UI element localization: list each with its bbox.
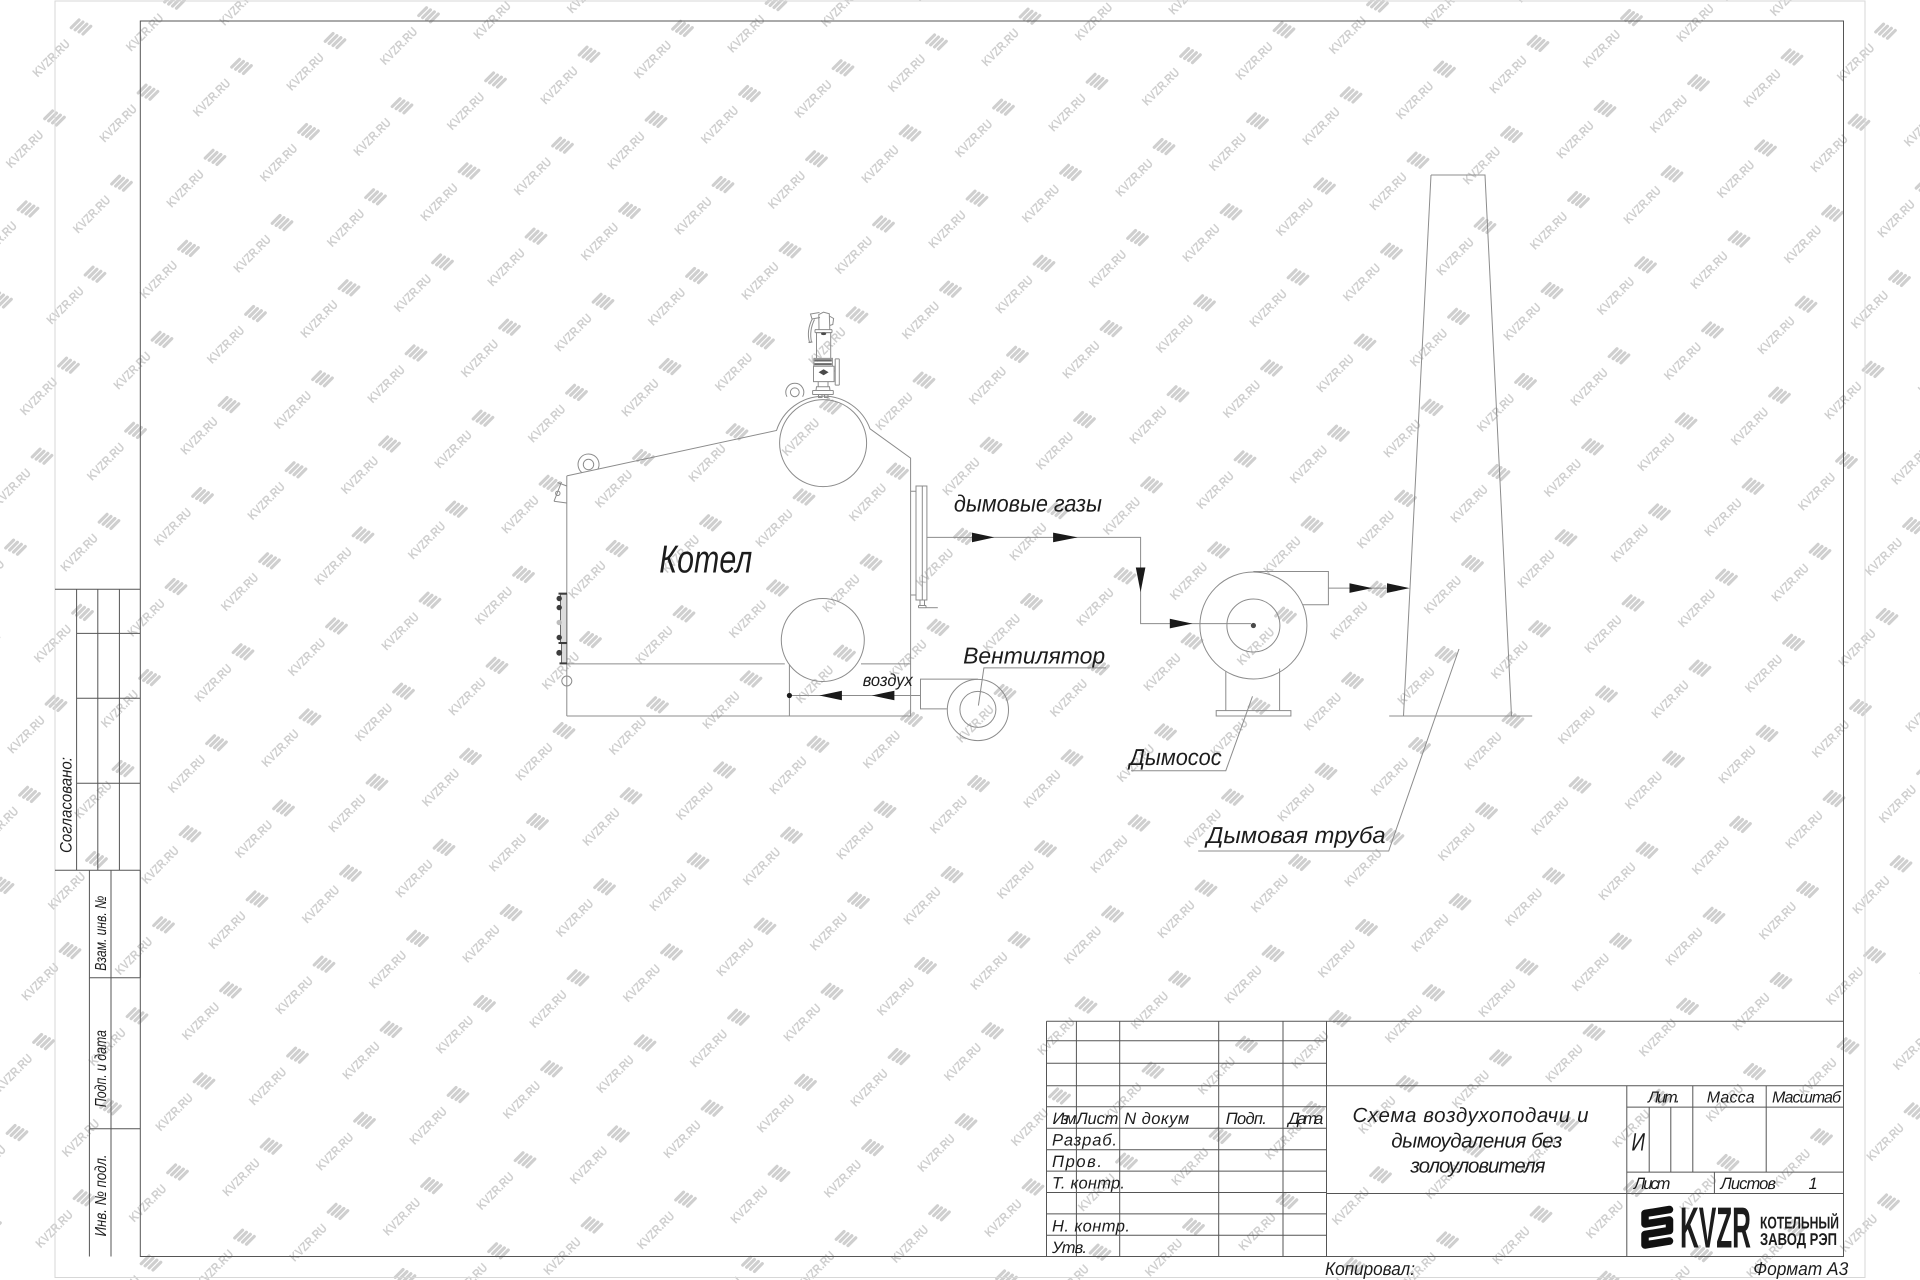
svg-text:KVZR.RU: KVZR.RU bbox=[874, 975, 917, 1018]
svg-text:KVZR.RU: KVZR.RU bbox=[792, 78, 835, 121]
svg-text:KVZR.RU: KVZR.RU bbox=[779, 416, 822, 459]
svg-text:KVZR.RU: KVZR.RU bbox=[1421, 573, 1464, 616]
svg-text:KVZR.RU: KVZR.RU bbox=[44, 284, 87, 327]
svg-text:KVZR.RU: KVZR.RU bbox=[606, 715, 649, 758]
svg-text:KVZR.RU: KVZR.RU bbox=[1836, 626, 1879, 669]
svg-text:KVZR.RU: KVZR.RU bbox=[728, 1183, 771, 1226]
svg-text:золоуловителя: золоуловителя bbox=[1409, 1155, 1545, 1178]
svg-text:KVZR.RU: KVZR.RU bbox=[1139, 65, 1182, 108]
svg-text:KVZR.RU: KVZR.RU bbox=[1582, 613, 1625, 656]
svg-text:KVZR.RU: KVZR.RU bbox=[1622, 769, 1665, 812]
svg-text:KVZR.RU: KVZR.RU bbox=[1273, 196, 1316, 239]
svg-text:KVZR.RU: KVZR.RU bbox=[1301, 690, 1344, 733]
svg-text:KVZR.RU: KVZR.RU bbox=[232, 818, 275, 861]
svg-text:KVZR.RU: KVZR.RU bbox=[405, 519, 448, 562]
svg-text:KVZR.RU: KVZR.RU bbox=[0, 557, 7, 600]
svg-text:KVZR.RU: KVZR.RU bbox=[1834, 41, 1877, 84]
svg-text:KVZR.RU: KVZR.RU bbox=[698, 103, 741, 146]
svg-text:Масштаб: Масштаб bbox=[1772, 1090, 1842, 1107]
svg-text:KVZR.RU: KVZR.RU bbox=[1716, 743, 1759, 786]
svg-text:KVZR.RU: KVZR.RU bbox=[1702, 496, 1745, 539]
svg-text:KVZR.RU: KVZR.RU bbox=[472, 584, 515, 627]
svg-text:KVZR.RU: KVZR.RU bbox=[1328, 599, 1371, 642]
svg-text:KVZR.RU: KVZR.RU bbox=[1222, 963, 1265, 1006]
svg-text:KVZR.RU: KVZR.RU bbox=[513, 740, 556, 783]
svg-text:KVZR.RU: KVZR.RU bbox=[1688, 249, 1731, 292]
svg-text:KVZR.RU: KVZR.RU bbox=[633, 624, 676, 667]
svg-text:KVZR.RU: KVZR.RU bbox=[1395, 664, 1438, 707]
svg-text:KVZR.RU: KVZR.RU bbox=[765, 169, 808, 212]
svg-text:Утв.: Утв. bbox=[1051, 1239, 1087, 1257]
svg-text:KVZR.RU: KVZR.RU bbox=[1074, 586, 1117, 629]
svg-text:KVZR.RU: KVZR.RU bbox=[793, 663, 836, 706]
svg-text:KVZR.RU: KVZR.RU bbox=[818, 0, 861, 30]
svg-text:KVZR.RU: KVZR.RU bbox=[1155, 898, 1198, 941]
svg-text:KVZR.RU: KVZR.RU bbox=[634, 1209, 677, 1252]
svg-text:KVZR.RU: KVZR.RU bbox=[192, 662, 235, 705]
svg-text:KVZR.RU: KVZR.RU bbox=[1502, 886, 1545, 929]
svg-text:Подп. и дата: Подп. и дата bbox=[93, 1030, 110, 1107]
svg-text:KVZR.RU: KVZR.RU bbox=[486, 831, 529, 874]
svg-text:KVZR.RU: KVZR.RU bbox=[915, 1132, 958, 1175]
svg-text:И: И bbox=[1632, 1128, 1646, 1156]
svg-text:KVZR.RU: KVZR.RU bbox=[100, 1273, 143, 1280]
svg-text:KVZR.RU: KVZR.RU bbox=[821, 1157, 864, 1200]
svg-text:KVZR.RU: KVZR.RU bbox=[137, 258, 180, 301]
svg-text:KVZR.RU: KVZR.RU bbox=[326, 792, 369, 835]
svg-text:KVZR.RU: KVZR.RU bbox=[231, 232, 274, 275]
svg-text:Изм: Изм bbox=[1053, 1110, 1077, 1128]
svg-text:KVZR.RU: KVZR.RU bbox=[0, 1142, 9, 1185]
svg-text:KVZR.RU: KVZR.RU bbox=[888, 1223, 931, 1266]
svg-text:KVZR.RU: KVZR.RU bbox=[58, 531, 101, 574]
svg-text:KVZR.RU: KVZR.RU bbox=[1206, 131, 1249, 174]
svg-text:KVZR.RU: KVZR.RU bbox=[795, 1248, 838, 1280]
svg-text:KVZR.RU: KVZR.RU bbox=[0, 466, 34, 509]
svg-text:KVZR.RU: KVZR.RU bbox=[1287, 443, 1330, 486]
svg-text:KVZR.RU: KVZR.RU bbox=[139, 844, 182, 887]
svg-text:KVZR.RU: KVZR.RU bbox=[807, 910, 850, 953]
svg-text:KVZR.RU: KVZR.RU bbox=[324, 207, 367, 250]
svg-text:KVZR.RU: KVZR.RU bbox=[859, 143, 902, 186]
svg-text:KVZR.RU: KVZR.RU bbox=[298, 298, 341, 341]
svg-text:Вентилятор: Вентилятор bbox=[963, 643, 1105, 669]
svg-text:KVZR.RU: KVZR.RU bbox=[714, 936, 757, 979]
svg-text:KVZR.RU: KVZR.RU bbox=[1490, 1224, 1533, 1267]
svg-text:KVZR.RU: KVZR.RU bbox=[151, 505, 194, 548]
svg-text:KVZR.RU: KVZR.RU bbox=[1127, 404, 1170, 447]
svg-text:Дата: Дата bbox=[1286, 1110, 1323, 1128]
svg-text:KVZR.RU: KVZR.RU bbox=[1756, 899, 1799, 942]
svg-text:KVZR.RU: KVZR.RU bbox=[564, 0, 607, 16]
svg-text:KVZR.RU: KVZR.RU bbox=[1420, 0, 1463, 31]
svg-text:KVZR.RU: KVZR.RU bbox=[1636, 1016, 1679, 1059]
svg-text:KVZR.RU: KVZR.RU bbox=[284, 50, 327, 93]
svg-text:KVZR.RU: KVZR.RU bbox=[700, 689, 743, 732]
svg-text:KVZR.RU: KVZR.RU bbox=[271, 389, 314, 432]
svg-text:KVZR.RU: KVZR.RU bbox=[1850, 874, 1893, 917]
svg-text:KVZR.RU: KVZR.RU bbox=[1261, 534, 1304, 577]
svg-text:KVZR.RU: KVZR.RU bbox=[259, 727, 302, 770]
svg-text:KVZR.RU: KVZR.RU bbox=[458, 337, 501, 380]
svg-text:KVZR.RU: KVZR.RU bbox=[1435, 821, 1478, 864]
svg-text:KVZR.RU: KVZR.RU bbox=[1781, 223, 1824, 266]
svg-text:KVZR.RU: KVZR.RU bbox=[527, 988, 570, 1031]
svg-text:KVZR.RU: KVZR.RU bbox=[1021, 768, 1064, 811]
svg-text:KVZR.RU: KVZR.RU bbox=[1730, 990, 1773, 1033]
svg-text:KVZR.RU: KVZR.RU bbox=[1300, 105, 1343, 148]
svg-text:KVZR.RU: KVZR.RU bbox=[1008, 1106, 1051, 1149]
svg-text:KVZR.RU: KVZR.RU bbox=[1060, 338, 1103, 381]
svg-text:KVZR.RU: KVZR.RU bbox=[218, 571, 261, 614]
svg-text:KVZR.RU: KVZR.RU bbox=[952, 117, 995, 160]
svg-text:KVZR.RU: KVZR.RU bbox=[901, 884, 944, 927]
svg-text:KVZR.RU: KVZR.RU bbox=[1368, 755, 1411, 798]
svg-text:KVZR.RU: KVZR.RU bbox=[1007, 520, 1050, 563]
svg-text:KVZR.RU: KVZR.RU bbox=[1340, 261, 1383, 304]
svg-text:Подп.: Подп. bbox=[1226, 1110, 1267, 1128]
svg-text:KVZR.RU: KVZR.RU bbox=[968, 950, 1011, 993]
svg-text:KVZR.RU: KVZR.RU bbox=[725, 12, 768, 55]
svg-text:KVZR.RU: KVZR.RU bbox=[164, 167, 207, 210]
svg-text:KVZR.RU: KVZR.RU bbox=[433, 1013, 476, 1056]
svg-text:KVZR.RU: KVZR.RU bbox=[511, 155, 554, 198]
svg-text:KVZR.RU: KVZR.RU bbox=[1862, 535, 1905, 578]
svg-text:KVZR.RU: KVZR.RU bbox=[1527, 209, 1570, 252]
svg-text:KVZR.RU: KVZR.RU bbox=[913, 546, 956, 589]
svg-text:KVZR.RU: KVZR.RU bbox=[580, 806, 623, 849]
svg-text:Т. контр.: Т. контр. bbox=[1052, 1175, 1125, 1193]
svg-text:KVZR: KVZR bbox=[1680, 1196, 1751, 1261]
svg-text:KVZR.RU: KVZR.RU bbox=[70, 193, 113, 236]
svg-text:KVZR.RU: KVZR.RU bbox=[0, 0, 6, 15]
svg-text:KVZR.RU: KVZR.RU bbox=[1233, 40, 1276, 83]
svg-text:KVZR.RU: KVZR.RU bbox=[179, 1000, 222, 1043]
svg-text:KVZR.RU: KVZR.RU bbox=[567, 1144, 610, 1187]
svg-text:KVZR.RU: KVZR.RU bbox=[97, 102, 140, 145]
svg-text:KVZR.RU: KVZR.RU bbox=[592, 467, 635, 510]
svg-text:KVZR.RU: KVZR.RU bbox=[566, 558, 609, 601]
svg-text:KVZR.RU: KVZR.RU bbox=[1153, 313, 1196, 356]
svg-text:KVZR.RU: KVZR.RU bbox=[1141, 651, 1184, 694]
svg-text:KVZR.RU: KVZR.RU bbox=[846, 481, 889, 524]
svg-text:KVZR.RU: KVZR.RU bbox=[1809, 717, 1852, 760]
svg-text:KVZR.RU: KVZR.RU bbox=[739, 260, 782, 303]
svg-text:KVZR.RU: KVZR.RU bbox=[365, 363, 408, 406]
svg-text:KVZR.RU: KVZR.RU bbox=[3, 128, 46, 171]
svg-text:KVZR.RU: KVZR.RU bbox=[17, 375, 60, 418]
svg-text:KVZR.RU: KVZR.RU bbox=[432, 428, 475, 471]
svg-text:KVZR.RU: KVZR.RU bbox=[712, 351, 755, 394]
svg-text:KVZR.RU: KVZR.RU bbox=[1767, 0, 1810, 19]
svg-text:KVZR.RU: KVZR.RU bbox=[460, 922, 503, 965]
svg-text:KVZR.RU: KVZR.RU bbox=[407, 1104, 450, 1147]
svg-text:KVZR.RU: KVZR.RU bbox=[178, 414, 221, 457]
svg-text:KVZR.RU: KVZR.RU bbox=[1674, 2, 1717, 45]
svg-text:KVZR.RU: KVZR.RU bbox=[1033, 429, 1076, 472]
svg-text:KVZR.RU: KVZR.RU bbox=[538, 64, 581, 107]
svg-text:KVZR.RU: KVZR.RU bbox=[1515, 548, 1558, 591]
svg-text:KVZR.RU: KVZR.RU bbox=[1594, 275, 1637, 318]
svg-text:Формат А3: Формат А3 bbox=[1753, 1258, 1849, 1279]
svg-text:KVZR.RU: KVZR.RU bbox=[1247, 287, 1290, 330]
svg-text:KVZR.RU: KVZR.RU bbox=[1529, 795, 1572, 838]
svg-text:KVZR.RU: KVZR.RU bbox=[1848, 288, 1891, 331]
svg-text:KVZR.RU: KVZR.RU bbox=[941, 1041, 984, 1084]
svg-text:KVZR.RU: KVZR.RU bbox=[673, 780, 716, 823]
svg-text:KVZR.RU: KVZR.RU bbox=[313, 1130, 356, 1173]
svg-text:KVZR.RU: KVZR.RU bbox=[966, 364, 1009, 407]
svg-text:KVZR.RU: KVZR.RU bbox=[832, 234, 875, 277]
svg-text:KVZR.RU: KVZR.RU bbox=[111, 349, 154, 392]
svg-text:KVZR.RU: KVZR.RU bbox=[0, 804, 21, 847]
svg-text:KVZR.RU: KVZR.RU bbox=[661, 1118, 704, 1161]
svg-text:KVZR.RU: KVZR.RU bbox=[1046, 91, 1089, 134]
svg-text:KVZR.RU: KVZR.RU bbox=[1314, 352, 1357, 395]
svg-text:KVZR.RU: KVZR.RU bbox=[982, 1197, 1025, 1240]
svg-text:KVZR.RU: KVZR.RU bbox=[1543, 1042, 1586, 1085]
svg-text:KVZR.RU: KVZR.RU bbox=[340, 1039, 383, 1082]
svg-text:KVZR.RU: KVZR.RU bbox=[485, 246, 528, 289]
svg-text:Масса: Масса bbox=[1707, 1090, 1755, 1107]
svg-text:Согласовано:: Согласовано: bbox=[58, 757, 76, 853]
svg-text:KVZR.RU: KVZR.RU bbox=[1462, 730, 1505, 773]
svg-text:KVZR.RU: KVZR.RU bbox=[220, 1156, 263, 1199]
svg-text:KVZR.RU: KVZR.RU bbox=[1903, 692, 1920, 735]
svg-text:KVZR.RU: KVZR.RU bbox=[1661, 340, 1704, 383]
svg-text:KVZR.RU: KVZR.RU bbox=[1169, 1145, 1212, 1188]
svg-text:KVZR.RU: KVZR.RU bbox=[1019, 182, 1062, 225]
svg-text:KVZR.RU: KVZR.RU bbox=[1342, 846, 1385, 889]
svg-text:Дымовая труба: Дымовая труба bbox=[1204, 822, 1386, 848]
svg-text:Дымосос: Дымосос bbox=[1127, 744, 1222, 770]
svg-text:KVZR.RU: KVZR.RU bbox=[539, 649, 582, 692]
svg-text:KVZR.RU: KVZR.RU bbox=[1876, 783, 1919, 826]
svg-text:KVZR.RU: KVZR.RU bbox=[552, 311, 595, 354]
svg-text:KVZR.RU: KVZR.RU bbox=[1326, 14, 1369, 57]
svg-text:KVZR.RU: KVZR.RU bbox=[338, 454, 381, 497]
svg-text:KVZR.RU: KVZR.RU bbox=[1555, 704, 1598, 747]
svg-text:KVZR.RU: KVZR.RU bbox=[1236, 1210, 1279, 1253]
svg-text:KVZR.RU: KVZR.RU bbox=[1580, 27, 1623, 70]
svg-text:KVZR.RU: KVZR.RU bbox=[1635, 431, 1678, 474]
svg-text:KVZR.RU: KVZR.RU bbox=[393, 857, 436, 900]
svg-text:KVZR.RU: KVZR.RU bbox=[754, 1092, 797, 1135]
svg-text:KVZR.RU: KVZR.RU bbox=[1289, 1028, 1332, 1071]
svg-text:KVZR.RU: KVZR.RU bbox=[1407, 326, 1450, 369]
svg-text:Н. контр.: Н. контр. bbox=[1052, 1218, 1130, 1236]
svg-text:KVZR.RU: KVZR.RU bbox=[1649, 678, 1692, 721]
svg-text:KVZR.RU: KVZR.RU bbox=[1875, 197, 1918, 240]
svg-text:KVZR.RU: KVZR.RU bbox=[885, 52, 928, 95]
svg-text:KVZR.RU: KVZR.RU bbox=[418, 181, 461, 224]
svg-text:KVZR.RU: KVZR.RU bbox=[1728, 405, 1771, 448]
svg-text:KVZR.RU: KVZR.RU bbox=[153, 1091, 196, 1134]
svg-text:KVZR.RU: KVZR.RU bbox=[1915, 353, 1920, 396]
svg-text:KVZR.RU: KVZR.RU bbox=[1220, 378, 1263, 421]
svg-text:KVZR.RU: KVZR.RU bbox=[204, 323, 247, 366]
svg-text:KVZR.RU: KVZR.RU bbox=[1382, 1003, 1425, 1046]
svg-text:KVZR.RU: KVZR.RU bbox=[1808, 132, 1851, 175]
svg-text:KVZR.RU: KVZR.RU bbox=[726, 598, 769, 641]
svg-text:KVZR.RU: KVZR.RU bbox=[1460, 144, 1503, 187]
svg-text:Схема воздухоподачи и: Схема воздухоподачи и bbox=[1353, 1104, 1589, 1127]
svg-text:KVZR.RU: KVZR.RU bbox=[257, 141, 300, 184]
svg-text:KVZR.RU: KVZR.RU bbox=[1568, 366, 1611, 409]
svg-text:KVZR.RU: KVZR.RU bbox=[605, 129, 648, 172]
svg-text:KVZR.RU: KVZR.RU bbox=[45, 869, 88, 912]
svg-text:KVZR.RU: KVZR.RU bbox=[1167, 560, 1210, 603]
svg-text:KVZR.RU: KVZR.RU bbox=[767, 754, 810, 797]
svg-text:KVZR.RU: KVZR.RU bbox=[377, 25, 420, 68]
svg-text:KVZR.RU: KVZR.RU bbox=[753, 507, 796, 550]
svg-text:KVZR.RU: KVZR.RU bbox=[1329, 1185, 1372, 1228]
svg-text:KVZR.RU: KVZR.RU bbox=[1714, 158, 1757, 201]
svg-text:KVZR.RU: KVZR.RU bbox=[285, 636, 328, 679]
svg-text:KVZR.RU: KVZR.RU bbox=[273, 974, 316, 1017]
svg-text:KVZR.RU: KVZR.RU bbox=[499, 493, 542, 536]
svg-text:KVZR.RU: KVZR.RU bbox=[1086, 247, 1129, 290]
svg-text:KVZR.RU: KVZR.RU bbox=[1569, 951, 1612, 994]
svg-text:KVZR.RU: KVZR.RU bbox=[1248, 872, 1291, 915]
svg-text:KVZR.RU: KVZR.RU bbox=[873, 390, 916, 433]
svg-text:KVZR.RU: KVZR.RU bbox=[1072, 0, 1115, 43]
svg-text:KVZR.RU: KVZR.RU bbox=[1783, 808, 1826, 851]
svg-text:KVZR.RU: KVZR.RU bbox=[1061, 924, 1104, 967]
svg-text:KVZR.RU: KVZR.RU bbox=[391, 272, 434, 315]
svg-text:KVZR.RU: KVZR.RU bbox=[474, 1170, 517, 1213]
svg-text:KVZR.RU: KVZR.RU bbox=[834, 819, 877, 862]
svg-text:KVZR.RU: KVZR.RU bbox=[59, 1117, 102, 1160]
svg-text:Взам. инв. №: Взам. инв. № bbox=[93, 896, 110, 971]
svg-text:воздух: воздух bbox=[863, 670, 914, 690]
svg-text:KVZR.RU: KVZR.RU bbox=[1448, 482, 1491, 525]
svg-text:KVZR.RU: KVZR.RU bbox=[84, 440, 127, 483]
svg-text:KVZR.RU: KVZR.RU bbox=[631, 38, 674, 81]
svg-text:KVZR.RU: KVZR.RU bbox=[500, 1079, 543, 1122]
svg-text:KVZR.RU: KVZR.RU bbox=[1823, 965, 1866, 1008]
svg-text:KVZR.RU: KVZR.RU bbox=[1195, 1054, 1238, 1097]
svg-text:1: 1 bbox=[1809, 1175, 1818, 1193]
svg-text:Лист: Лист bbox=[1075, 1110, 1118, 1128]
svg-text:KVZR.RU: KVZR.RU bbox=[1755, 314, 1798, 357]
svg-text:KVZR.RU: KVZR.RU bbox=[1142, 1236, 1185, 1279]
svg-text:KVZR.RU: KVZR.RU bbox=[993, 273, 1036, 316]
svg-text:KVZR.RU: KVZR.RU bbox=[619, 376, 662, 419]
svg-text:KVZR.RU: KVZR.RU bbox=[1621, 184, 1664, 227]
svg-text:KVZR.RU: KVZR.RU bbox=[645, 285, 688, 328]
svg-text:KVZR.RU: KVZR.RU bbox=[1770, 1147, 1813, 1190]
svg-text:KVZR.RU: KVZR.RU bbox=[0, 1051, 35, 1094]
svg-text:KVZR.RU: KVZR.RU bbox=[246, 1065, 289, 1108]
svg-text:KVZR.RU: KVZR.RU bbox=[1393, 79, 1436, 122]
svg-text:KVZR.RU: KVZR.RU bbox=[647, 871, 690, 914]
svg-text:KVZR.RU: KVZR.RU bbox=[1890, 1030, 1920, 1073]
svg-text:ЗАВОД РЭП: ЗАВОД РЭП bbox=[1760, 1230, 1837, 1249]
svg-text:KVZR.RU: KVZR.RU bbox=[1795, 470, 1838, 513]
svg-text:KVZR.RU: KVZR.RU bbox=[1554, 118, 1597, 161]
svg-text:KVZR.RU: KVZR.RU bbox=[193, 1247, 236, 1280]
svg-text:KVZR.RU: KVZR.RU bbox=[1180, 222, 1223, 265]
svg-text:Лист: Лист bbox=[1633, 1175, 1671, 1193]
svg-text:KVZR.RU: KVZR.RU bbox=[594, 1053, 637, 1096]
svg-text:KVZR.RU: KVZR.RU bbox=[1741, 67, 1784, 110]
svg-text:KVZR.RU: KVZR.RU bbox=[419, 766, 462, 809]
svg-text:KVZR.RU: KVZR.RU bbox=[72, 778, 115, 821]
svg-text:KVZR.RU: KVZR.RU bbox=[1100, 495, 1143, 538]
svg-text:KVZR.RU: KVZR.RU bbox=[1596, 860, 1639, 903]
svg-text:KVZR.RU: KVZR.RU bbox=[525, 402, 568, 445]
svg-text:Котел: Котел bbox=[659, 539, 752, 582]
svg-text:KVZR.RU: KVZR.RU bbox=[126, 1182, 169, 1225]
svg-text:KVZR.RU: KVZR.RU bbox=[927, 793, 970, 836]
svg-text:KVZR.RU: KVZR.RU bbox=[1501, 300, 1544, 343]
svg-text:KVZR.RU: KVZR.RU bbox=[1434, 235, 1477, 278]
svg-text:KVZR.RU: KVZR.RU bbox=[1541, 457, 1584, 500]
svg-text:KVZR.RU: KVZR.RU bbox=[553, 897, 596, 940]
svg-text:KVZR.RU: KVZR.RU bbox=[860, 728, 903, 771]
svg-text:KVZR.RU: KVZR.RU bbox=[30, 37, 73, 80]
svg-text:KVZR.RU: KVZR.RU bbox=[848, 1066, 891, 1109]
svg-text:KVZR.RU: KVZR.RU bbox=[444, 90, 487, 133]
svg-text:KVZR.RU: KVZR.RU bbox=[740, 845, 783, 888]
svg-text:дымовые газы: дымовые газы bbox=[954, 491, 1102, 517]
svg-text:KVZR.RU: KVZR.RU bbox=[351, 116, 394, 159]
svg-text:KVZR.RU: KVZR.RU bbox=[781, 1001, 824, 1044]
svg-text:KVZR.RU: KVZR.RU bbox=[1889, 444, 1920, 487]
svg-text:Разраб.: Разраб. bbox=[1052, 1132, 1117, 1150]
svg-text:KVZR.RU: KVZR.RU bbox=[380, 1195, 423, 1238]
svg-text:KVZR.RU: KVZR.RU bbox=[672, 194, 715, 237]
svg-text:KVZR.RU: KVZR.RU bbox=[1047, 677, 1090, 720]
svg-text:KVZR.RU: KVZR.RU bbox=[1583, 1198, 1626, 1241]
svg-text:KVZR.RU: KVZR.RU bbox=[1487, 53, 1530, 96]
svg-text:KVZR.RU: KVZR.RU bbox=[0, 219, 20, 262]
svg-text:KVZR.RU: KVZR.RU bbox=[379, 610, 422, 653]
svg-text:KVZR.RU: KVZR.RU bbox=[1354, 508, 1397, 551]
svg-text:KVZR.RU: KVZR.RU bbox=[899, 299, 942, 342]
svg-text:KVZR.RU: KVZR.RU bbox=[190, 76, 233, 119]
svg-text:N докум: N докум bbox=[1124, 1110, 1189, 1128]
svg-text:KVZR.RU: KVZR.RU bbox=[446, 675, 489, 718]
svg-text:KVZR.RU: KVZR.RU bbox=[1689, 834, 1732, 877]
svg-text:KVZR.RU: KVZR.RU bbox=[366, 948, 409, 991]
svg-text:дымоудаления без: дымоудаления без bbox=[1391, 1130, 1562, 1153]
svg-text:KVZR.RU: KVZR.RU bbox=[820, 572, 863, 615]
svg-text:KVZR.RU: KVZR.RU bbox=[1234, 625, 1277, 668]
svg-text:KVZR.RU: KVZR.RU bbox=[1647, 93, 1690, 136]
svg-text:KVZR.RU: KVZR.RU bbox=[687, 1027, 730, 1070]
svg-text:KVZR.RU: KVZR.RU bbox=[926, 208, 969, 251]
svg-text:KVZR.RU: KVZR.RU bbox=[1128, 989, 1171, 1032]
svg-text:KVZR.RU: KVZR.RU bbox=[1663, 925, 1706, 968]
svg-text:KVZR.RU: KVZR.RU bbox=[979, 26, 1022, 69]
svg-text:KVZR.RU: KVZR.RU bbox=[1409, 912, 1452, 955]
svg-text:KVZR.RU: KVZR.RU bbox=[1901, 106, 1920, 149]
svg-text:KVZR.RU: KVZR.RU bbox=[620, 962, 663, 1005]
svg-text:KVZR.RU: KVZR.RU bbox=[352, 701, 395, 744]
svg-text:KVZR.RU: KVZR.RU bbox=[1315, 937, 1358, 980]
svg-text:KVZR.RU: KVZR.RU bbox=[312, 545, 355, 588]
svg-text:KVZR.RU: KVZR.RU bbox=[217, 0, 260, 28]
svg-text:KVZR.RU: KVZR.RU bbox=[206, 909, 249, 952]
svg-text:KVZR.RU: KVZR.RU bbox=[1088, 833, 1131, 876]
svg-text:Листов: Листов bbox=[1720, 1175, 1777, 1193]
svg-text:Пров.: Пров. bbox=[1052, 1153, 1102, 1171]
svg-text:KVZR.RU: KVZR.RU bbox=[245, 480, 288, 523]
svg-text:KVZR.RU: KVZR.RU bbox=[165, 753, 208, 796]
svg-text:Инв. № подл.: Инв. № подл. bbox=[93, 1154, 110, 1236]
